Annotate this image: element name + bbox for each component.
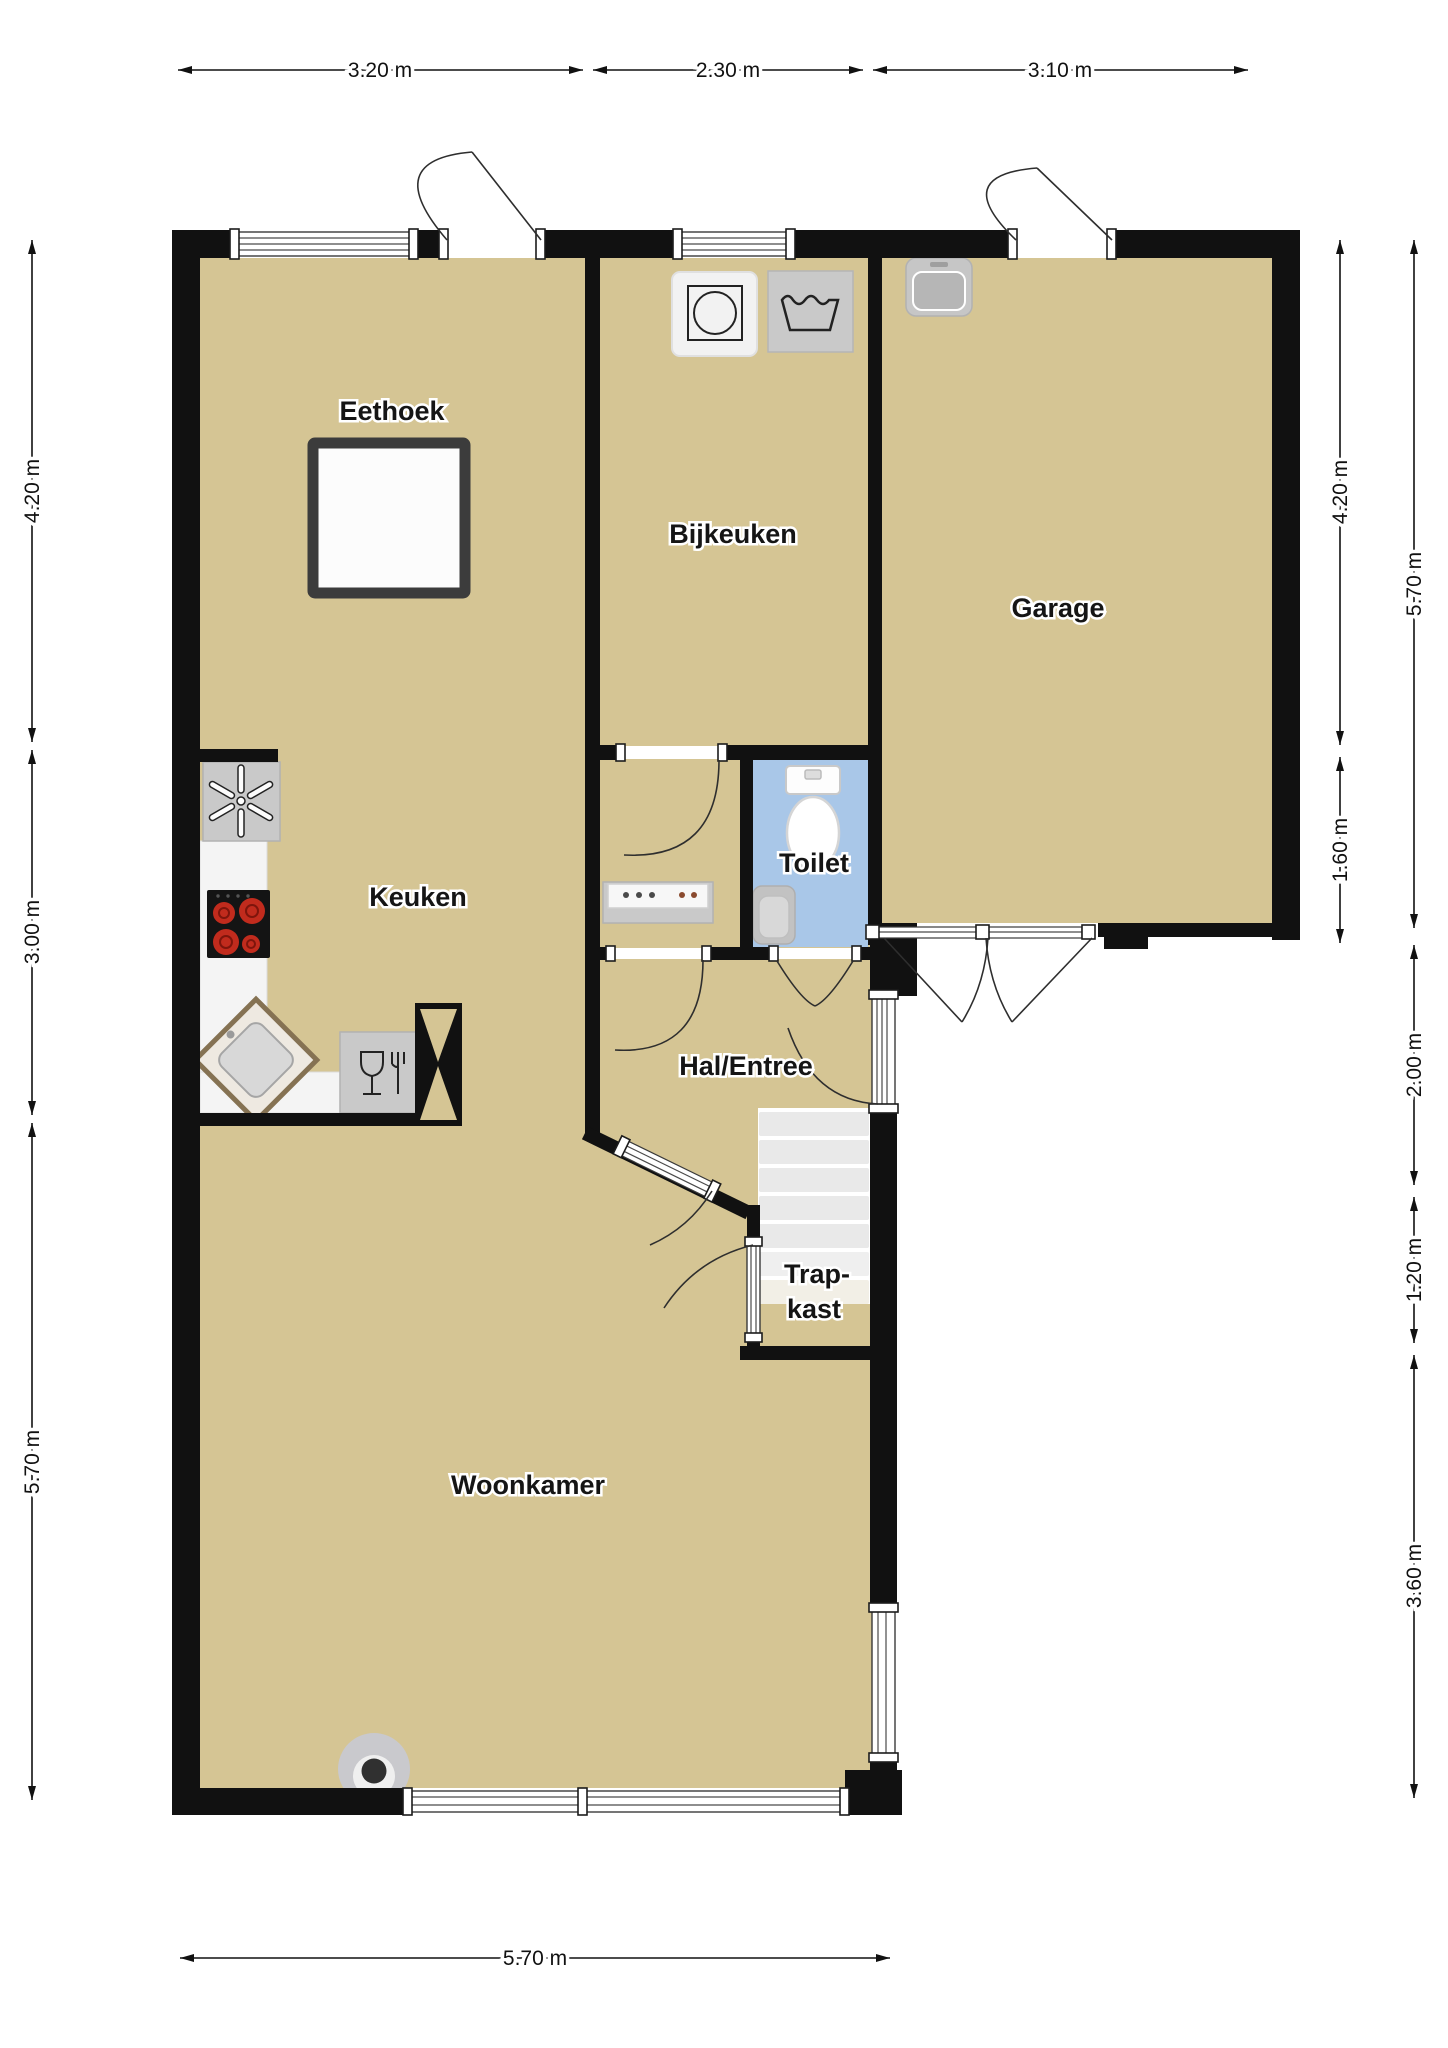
chimney-icon bbox=[415, 1003, 462, 1126]
dim-left-1: 4.20 m bbox=[21, 459, 44, 523]
dim-right-outer-4: 3.60 m bbox=[1403, 1544, 1426, 1608]
dim-right-outer-2: 2.00 m bbox=[1403, 1033, 1426, 1097]
dim-right-outer-1: 5.70 m bbox=[1403, 552, 1426, 616]
dim-right-inner-2: 1.60 m bbox=[1329, 818, 1352, 882]
dining-table bbox=[313, 443, 465, 593]
label-hal: Hal/Entree bbox=[679, 1051, 813, 1081]
label-bijkeuken: Bijkeuken bbox=[669, 519, 797, 549]
tub-glyph bbox=[782, 296, 838, 330]
woonkamer-bottom-window bbox=[403, 1788, 849, 1815]
garage-sink-icon bbox=[906, 258, 972, 316]
washing-machine-icon bbox=[672, 272, 757, 356]
bijkeuken-window bbox=[673, 229, 795, 259]
label-trapkast-2: kast bbox=[787, 1294, 841, 1324]
dim-right-inner-1: 4.20 m bbox=[1329, 460, 1352, 524]
hand-basin-icon bbox=[753, 886, 795, 944]
label-woonkamer: Woonkamer bbox=[451, 1470, 606, 1500]
dim-top-1: 3.20 m bbox=[348, 59, 412, 82]
cooktop-icon bbox=[207, 890, 270, 958]
dim-top-2: 2.30 m bbox=[696, 59, 760, 82]
dim-top-3: 3.10 m bbox=[1028, 59, 1092, 82]
garage-floor bbox=[882, 258, 1272, 923]
dishwasher-icon bbox=[340, 1032, 418, 1113]
dim-bottom-1: 5.70 m bbox=[503, 1947, 567, 1970]
floor-plan-page: Eethoek Bijkeuken Garage Keuken Toilet H… bbox=[0, 0, 1448, 2048]
dim-right-outer-3: 1.20 m bbox=[1403, 1238, 1426, 1302]
eethoek-window bbox=[230, 229, 418, 259]
label-garage: Garage bbox=[1011, 593, 1104, 623]
label-trapkast-1: Trap- bbox=[784, 1259, 850, 1289]
dim-left-3: 5.70 m bbox=[21, 1430, 44, 1494]
woonkamer-right-window bbox=[869, 1603, 898, 1762]
main-floor bbox=[200, 258, 872, 1788]
label-keuken: Keuken bbox=[369, 882, 467, 912]
floor-plan: Eethoek Bijkeuken Garage Keuken Toilet H… bbox=[0, 0, 1448, 2048]
outer-left-wall bbox=[172, 230, 200, 1815]
label-toilet: Toilet bbox=[779, 848, 849, 878]
laundry-tub-icon bbox=[768, 271, 853, 352]
label-eethoek: Eethoek bbox=[339, 396, 445, 426]
dim-left-2: 3.00 m bbox=[21, 900, 44, 964]
sideboard-icon bbox=[603, 882, 713, 923]
